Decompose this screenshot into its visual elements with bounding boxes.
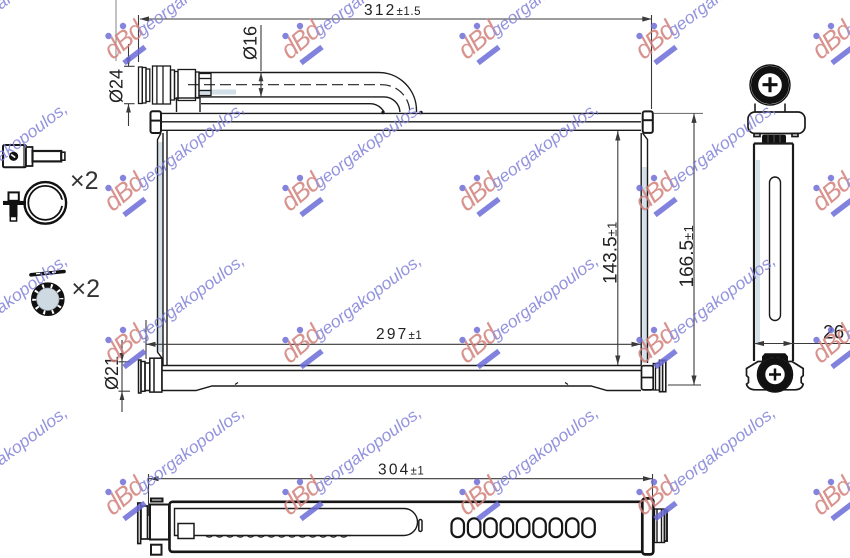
svg-text:×2: ×2: [70, 167, 99, 195]
svg-text:143.5±1: 143.5±1: [601, 221, 622, 284]
svg-text:297±1: 297±1: [376, 326, 422, 343]
svg-text:Ø16: Ø16: [241, 26, 261, 60]
svg-text:×2: ×2: [72, 275, 101, 303]
svg-text:312±1.5: 312±1.5: [364, 2, 421, 19]
svg-text:304±1: 304±1: [378, 462, 424, 479]
svg-text:Ø24: Ø24: [107, 69, 127, 103]
svg-text:166.5±1: 166.5±1: [677, 225, 698, 288]
